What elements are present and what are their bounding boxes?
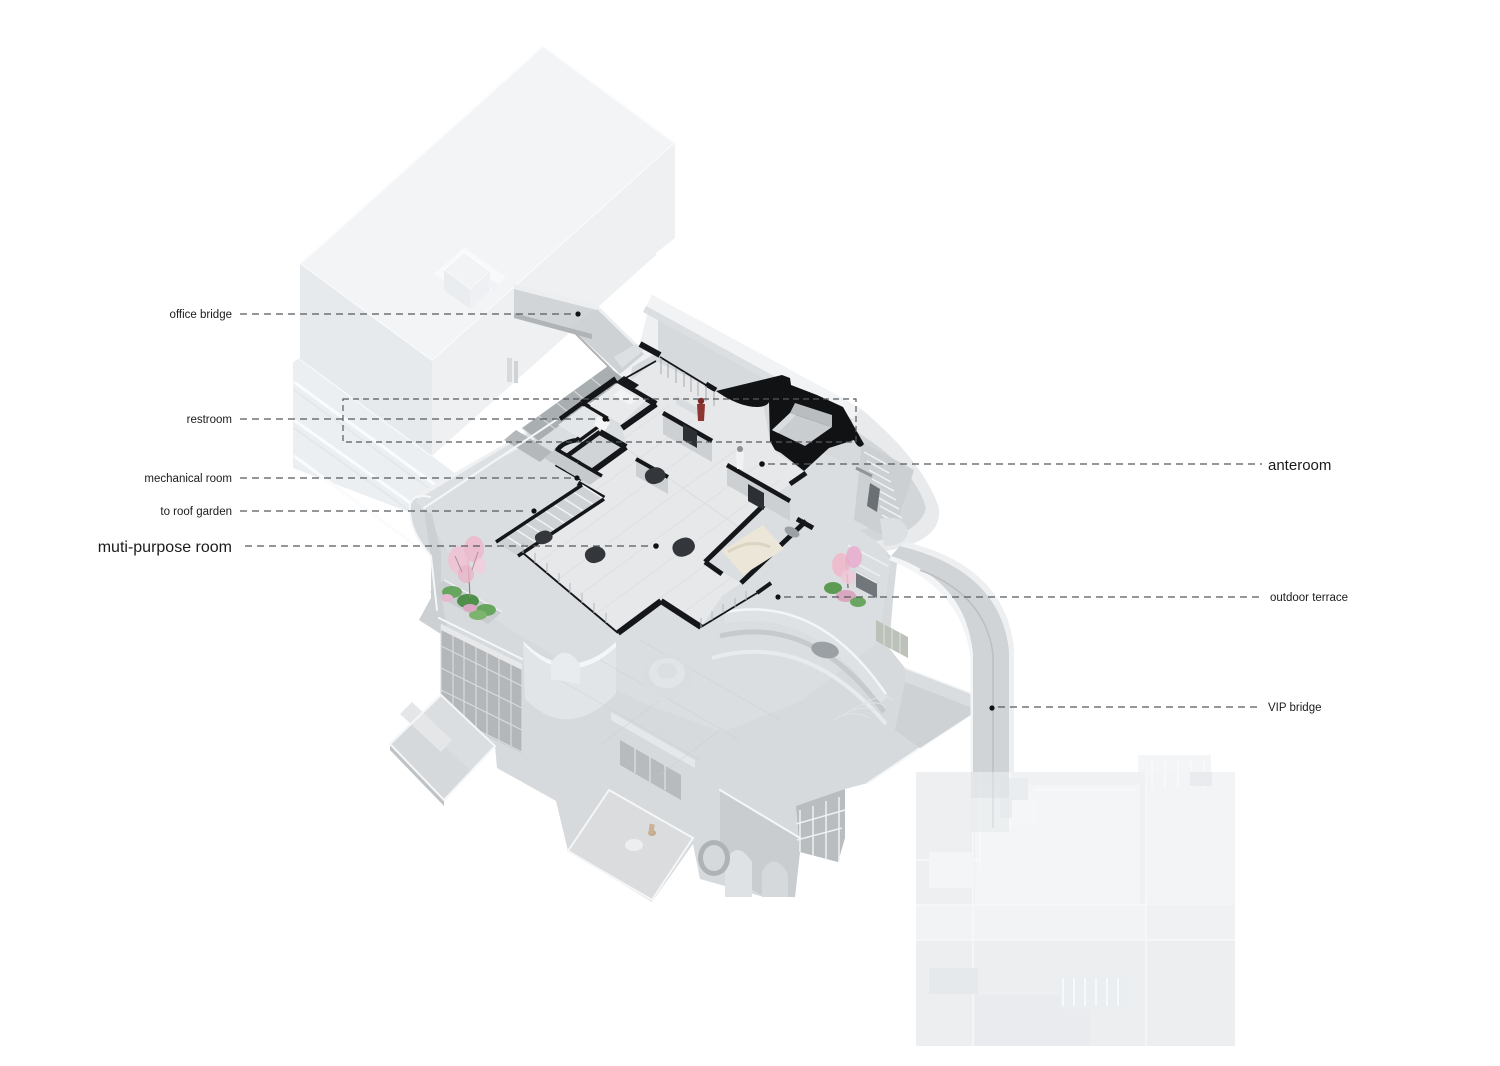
svg-text:muti-purpose room: muti-purpose room [98, 539, 232, 556]
svg-text:anteroom: anteroom [1268, 457, 1331, 474]
svg-text:mechanical room: mechanical room [144, 473, 232, 485]
svg-text:office bridge: office bridge [170, 309, 232, 321]
svg-text:restroom: restroom [187, 414, 232, 426]
svg-text:to roof garden: to roof garden [160, 506, 232, 518]
svg-text:VIP bridge: VIP bridge [1268, 702, 1322, 714]
svg-text:outdoor terrace: outdoor terrace [1270, 592, 1348, 604]
